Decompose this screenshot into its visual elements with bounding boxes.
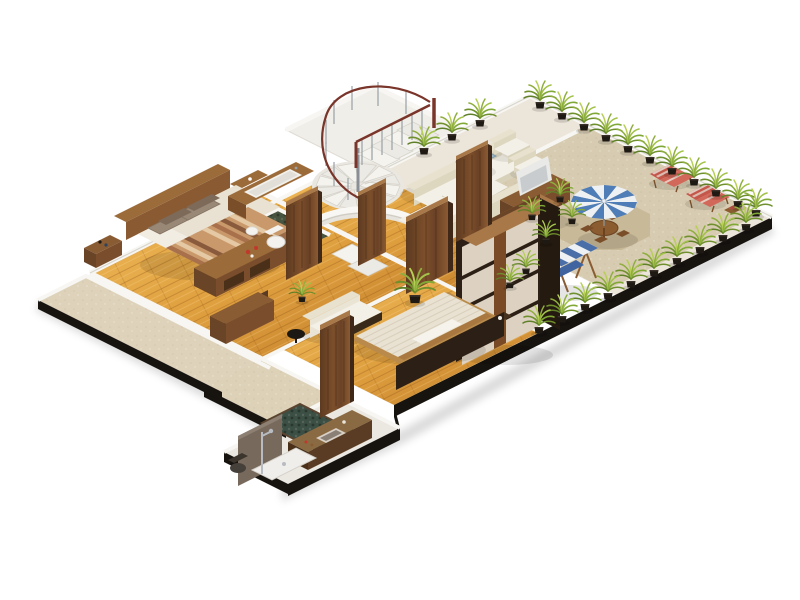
isometric-floorplan bbox=[0, 0, 800, 600]
floorplan-render-canvas bbox=[0, 0, 800, 600]
door-4 bbox=[456, 140, 492, 242]
door-5 bbox=[320, 310, 354, 418]
door-2 bbox=[358, 178, 386, 266]
bidet bbox=[246, 227, 258, 235]
